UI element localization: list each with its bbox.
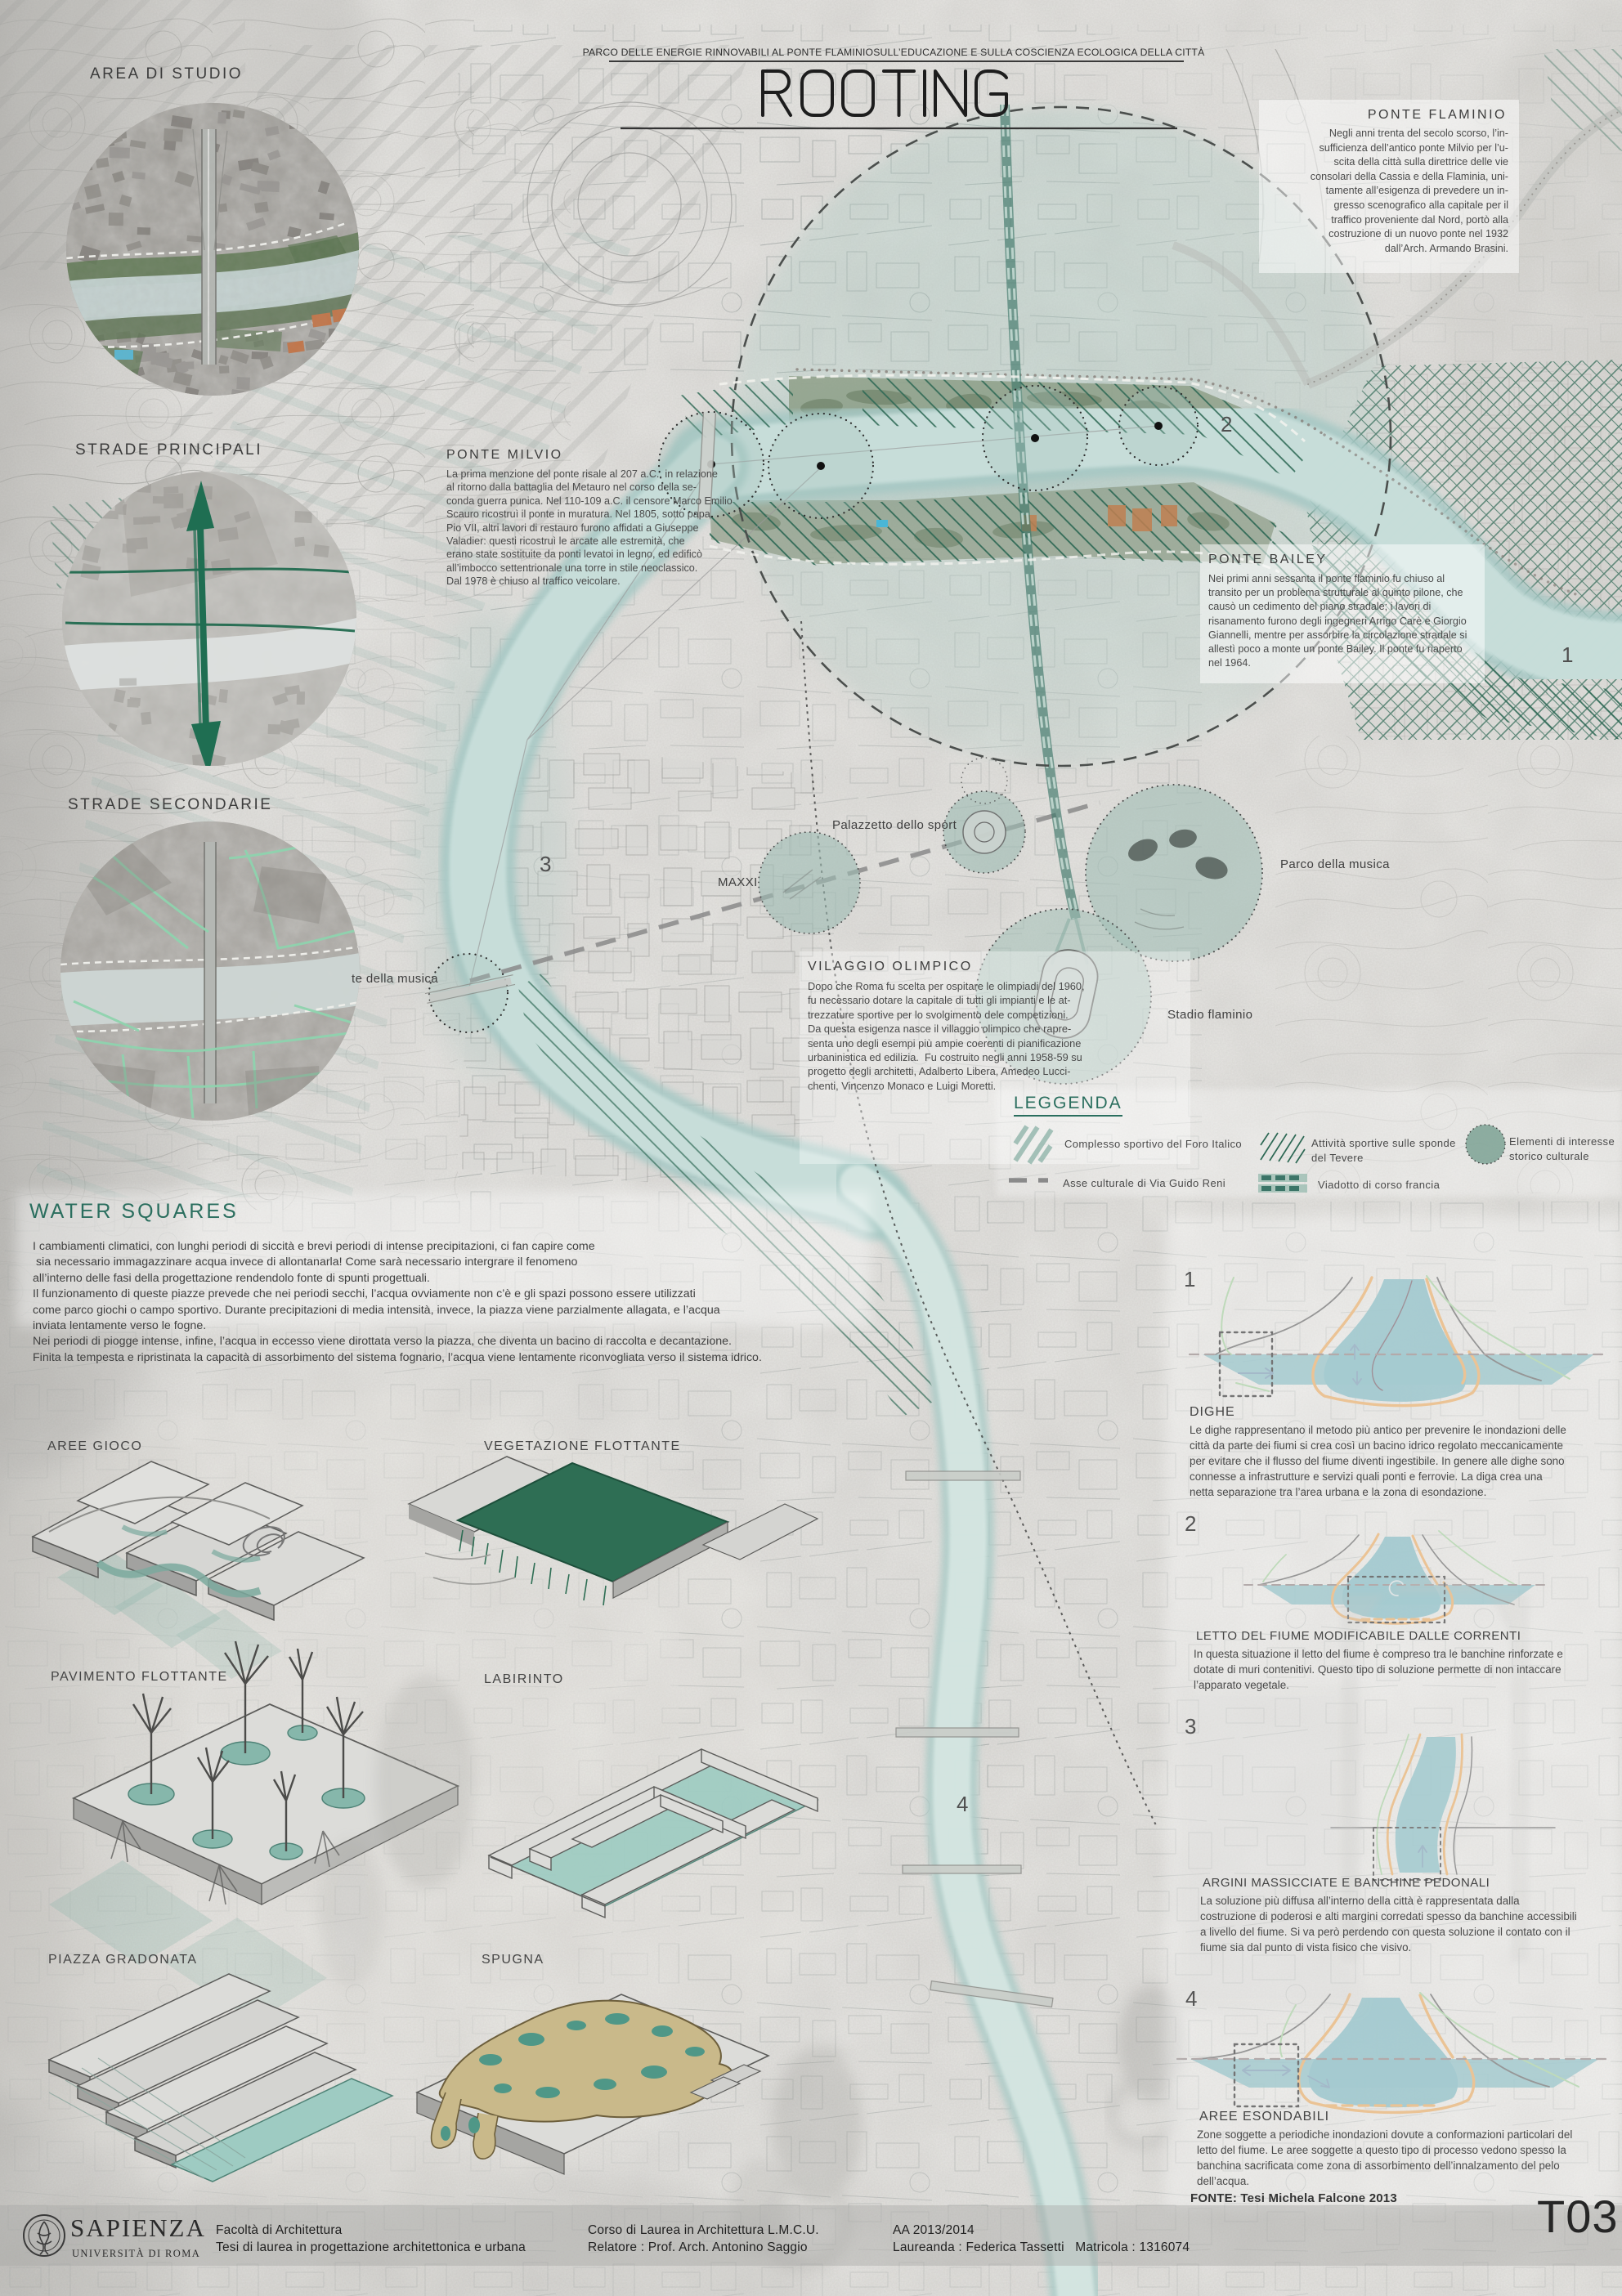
svg-text:4: 4: [957, 1792, 968, 1816]
svg-text:2: 2: [1221, 412, 1232, 436]
svg-text:3: 3: [540, 852, 551, 876]
svg-text:1: 1: [1562, 642, 1573, 667]
